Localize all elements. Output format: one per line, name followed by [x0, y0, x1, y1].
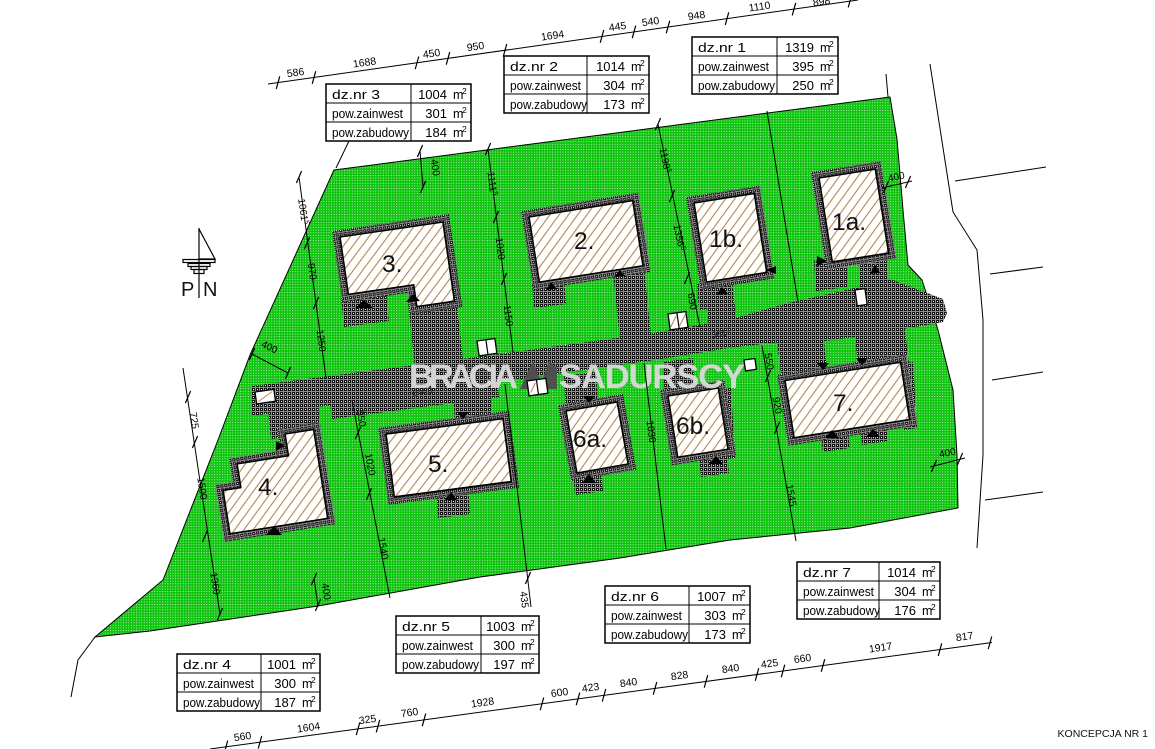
svg-text:2: 2 [931, 564, 936, 574]
svg-text:3.: 3. [382, 251, 402, 278]
svg-text:187: 187 [274, 695, 296, 710]
svg-text:dz.nr 5: dz.nr 5 [402, 620, 450, 634]
svg-text:250: 250 [792, 78, 814, 93]
svg-text:425: 425 [760, 657, 779, 671]
svg-text:304: 304 [894, 584, 916, 599]
svg-text:300: 300 [493, 638, 515, 653]
svg-text:1014: 1014 [596, 59, 625, 74]
svg-text:6b.: 6b. [676, 413, 710, 440]
svg-text:395: 395 [792, 59, 814, 74]
svg-text:2: 2 [311, 656, 316, 666]
svg-text:pow.zabudowy: pow.zabudowy [698, 79, 776, 93]
svg-text:7.: 7. [833, 390, 853, 417]
svg-text:2: 2 [931, 602, 936, 612]
svg-text:300: 300 [274, 676, 296, 691]
svg-text:pow.zainwest: pow.zainwest [332, 107, 403, 121]
svg-text:pow.zainwest: pow.zainwest [183, 677, 254, 691]
svg-text:pow.zainwest: pow.zainwest [803, 585, 874, 599]
svg-text:2: 2 [530, 656, 535, 666]
svg-text:2: 2 [741, 626, 746, 636]
svg-text:173: 173 [704, 627, 726, 642]
svg-text:1319: 1319 [785, 40, 814, 55]
svg-text:2: 2 [462, 86, 467, 96]
svg-text:dz.nr 7: dz.nr 7 [803, 566, 851, 580]
svg-text:2: 2 [741, 607, 746, 617]
svg-text:2: 2 [311, 694, 316, 704]
svg-text:2: 2 [931, 583, 936, 593]
svg-text:560: 560 [233, 730, 252, 744]
svg-text:950: 950 [466, 40, 485, 54]
svg-text:2: 2 [829, 58, 834, 68]
svg-text:600: 600 [550, 686, 569, 700]
svg-text:435: 435 [517, 591, 530, 609]
svg-text:197: 197 [493, 657, 515, 672]
svg-text:2: 2 [530, 618, 535, 628]
svg-text:N: N [203, 279, 217, 301]
svg-text:1003: 1003 [486, 619, 515, 634]
svg-text:660: 660 [793, 652, 812, 666]
svg-text:pow.zabudowy: pow.zabudowy [803, 604, 881, 618]
svg-text:586: 586 [286, 66, 305, 80]
svg-text:817: 817 [955, 630, 974, 644]
svg-text:1a.: 1a. [832, 209, 866, 236]
svg-text:184: 184 [425, 125, 447, 140]
svg-text:450: 450 [422, 47, 441, 61]
svg-text:1007: 1007 [697, 589, 726, 604]
svg-text:1014: 1014 [887, 565, 916, 580]
svg-text:423: 423 [581, 681, 600, 695]
svg-text:dz.nr 1: dz.nr 1 [698, 41, 746, 55]
svg-text:pow.zainwest: pow.zainwest [698, 60, 769, 74]
svg-text:948: 948 [687, 9, 706, 23]
svg-text:840: 840 [619, 676, 638, 690]
svg-text:304: 304 [603, 78, 625, 93]
svg-text:445: 445 [608, 20, 627, 34]
svg-text:176: 176 [894, 603, 916, 618]
svg-text:1001: 1001 [267, 657, 296, 672]
svg-text:1b.: 1b. [709, 226, 743, 253]
svg-text:pow.zabudowy: pow.zabudowy [510, 98, 588, 112]
svg-text:4.: 4. [258, 474, 278, 501]
svg-text:2.: 2. [574, 228, 594, 255]
svg-text:2: 2 [829, 39, 834, 49]
svg-text:pow.zabudowy: pow.zabudowy [332, 126, 410, 140]
svg-text:2: 2 [311, 675, 316, 685]
svg-text:pow.zabudowy: pow.zabudowy [611, 628, 689, 642]
svg-text:303: 303 [704, 608, 726, 623]
svg-text:pow.zainwest: pow.zainwest [510, 79, 581, 93]
svg-text:325: 325 [358, 713, 377, 727]
svg-text:760: 760 [400, 706, 419, 720]
svg-text:2: 2 [829, 77, 834, 87]
svg-text:dz.nr 6: dz.nr 6 [611, 590, 659, 604]
svg-text:2: 2 [640, 77, 645, 87]
svg-text:5.: 5. [428, 451, 448, 478]
svg-text:pow.zabudowy: pow.zabudowy [183, 696, 261, 710]
svg-text:pow.zainwest: pow.zainwest [402, 639, 473, 653]
svg-text:SADURSCY: SADURSCY [559, 358, 745, 396]
svg-text:2: 2 [462, 124, 467, 134]
svg-text:540: 540 [641, 15, 660, 29]
svg-text:2: 2 [530, 637, 535, 647]
svg-text:pow.zabudowy: pow.zabudowy [402, 658, 480, 672]
svg-text:301: 301 [425, 106, 447, 121]
svg-text:KONCEPCJA NR 1: KONCEPCJA NR 1 [1058, 728, 1149, 740]
svg-text:pow.zainwest: pow.zainwest [611, 609, 682, 623]
svg-text:840: 840 [721, 662, 740, 676]
svg-text:2: 2 [462, 105, 467, 115]
svg-text:6a.: 6a. [573, 426, 607, 453]
svg-text:2: 2 [741, 588, 746, 598]
svg-text:dz.nr 2: dz.nr 2 [510, 60, 558, 74]
svg-text:P: P [181, 279, 194, 301]
svg-text:173: 173 [603, 97, 625, 112]
svg-text:828: 828 [670, 669, 689, 683]
svg-text:1004: 1004 [418, 87, 447, 102]
svg-text:2: 2 [640, 58, 645, 68]
svg-text:dz.nr 4: dz.nr 4 [183, 658, 231, 672]
svg-text:dz.nr 3: dz.nr 3 [332, 88, 380, 102]
svg-text:2: 2 [640, 96, 645, 106]
